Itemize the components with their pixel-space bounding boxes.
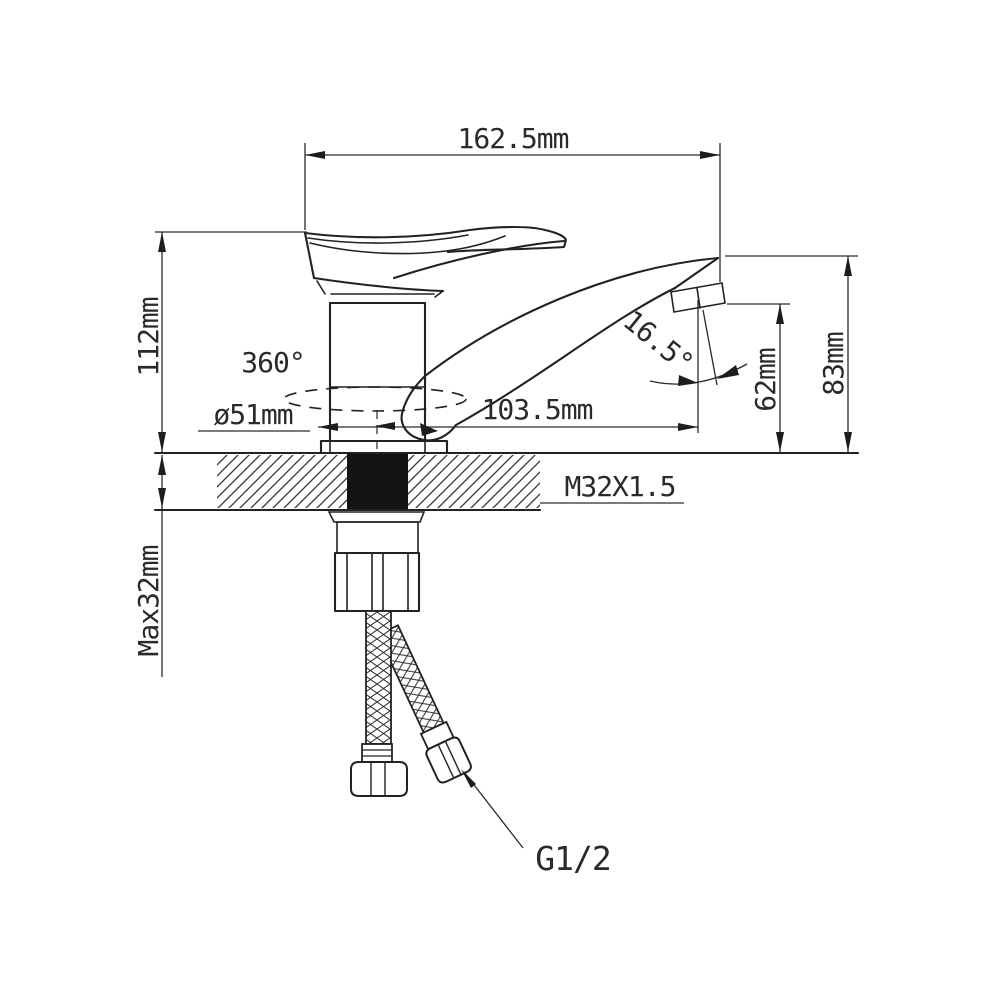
arrowhead — [717, 365, 739, 379]
arrowhead — [305, 151, 325, 159]
handle-rear-curve — [394, 241, 564, 278]
dim-height-62: 62mm — [727, 304, 790, 452]
arrowhead — [700, 151, 720, 159]
base-flange — [321, 441, 447, 453]
handle-left-face — [305, 233, 314, 278]
hose-collar — [362, 744, 392, 762]
under-deck-assembly — [329, 512, 473, 796]
arrowhead — [158, 432, 166, 452]
swivel-dashed-ellipse — [284, 387, 466, 411]
deck-hatch-right — [408, 455, 540, 508]
dim-label-112: 112mm — [132, 297, 165, 376]
dim-label-165: 16.5° — [617, 304, 699, 380]
dim-height-83: 83mm — [725, 256, 858, 452]
g12-label-text: G1/2 — [535, 839, 610, 878]
hose-braid — [366, 611, 391, 744]
arrowhead — [420, 423, 438, 436]
arrowhead — [375, 422, 395, 430]
arrowhead — [678, 423, 698, 431]
dim-label-62: 62mm — [749, 348, 782, 412]
arrowhead — [158, 232, 166, 252]
arrowhead — [158, 455, 166, 475]
label-thread-m32: M32X1.5 — [540, 470, 684, 503]
dim-width-top: 162.5mm — [305, 122, 720, 282]
dim-label-83: 83mm — [817, 332, 850, 396]
dim-label-dia51: ø51mm — [213, 398, 292, 431]
arrowhead — [678, 375, 698, 386]
dim-label-162: 162.5mm — [457, 122, 568, 155]
thread-label-text: M32X1.5 — [564, 470, 675, 503]
arrowhead — [844, 432, 852, 452]
hose-nut — [351, 762, 407, 796]
thread-stud — [347, 453, 408, 510]
body-cap-top — [314, 278, 443, 291]
angle-leg — [703, 310, 717, 385]
arrowhead — [158, 488, 166, 508]
faucet-drawing-svg: 162.5mm 112mm Max32mm 360° ø51mm 103.5mm — [0, 0, 1000, 1000]
label-hose-g12: G1/2 — [461, 769, 611, 878]
arrowhead — [776, 432, 784, 452]
deck-cross-section — [155, 453, 858, 510]
dim-angle-165: 16.5° — [617, 304, 747, 386]
arrowhead — [318, 423, 338, 431]
dim-label-max32: Max32mm — [132, 545, 165, 656]
mount-flare — [329, 512, 424, 522]
technical-drawing-canvas: 162.5mm 112mm Max32mm 360° ø51mm 103.5mm — [0, 0, 1000, 1000]
dim-label-103: 103.5mm — [481, 393, 592, 426]
arrowhead — [844, 256, 852, 276]
arrowhead — [776, 304, 784, 324]
dim-deck-max32: Max32mm — [132, 455, 166, 677]
body-cap-left — [317, 281, 325, 294]
deck-hatch-left — [217, 455, 347, 508]
label-swivel-360: 360° — [241, 346, 304, 379]
mount-collar-block — [337, 522, 418, 553]
